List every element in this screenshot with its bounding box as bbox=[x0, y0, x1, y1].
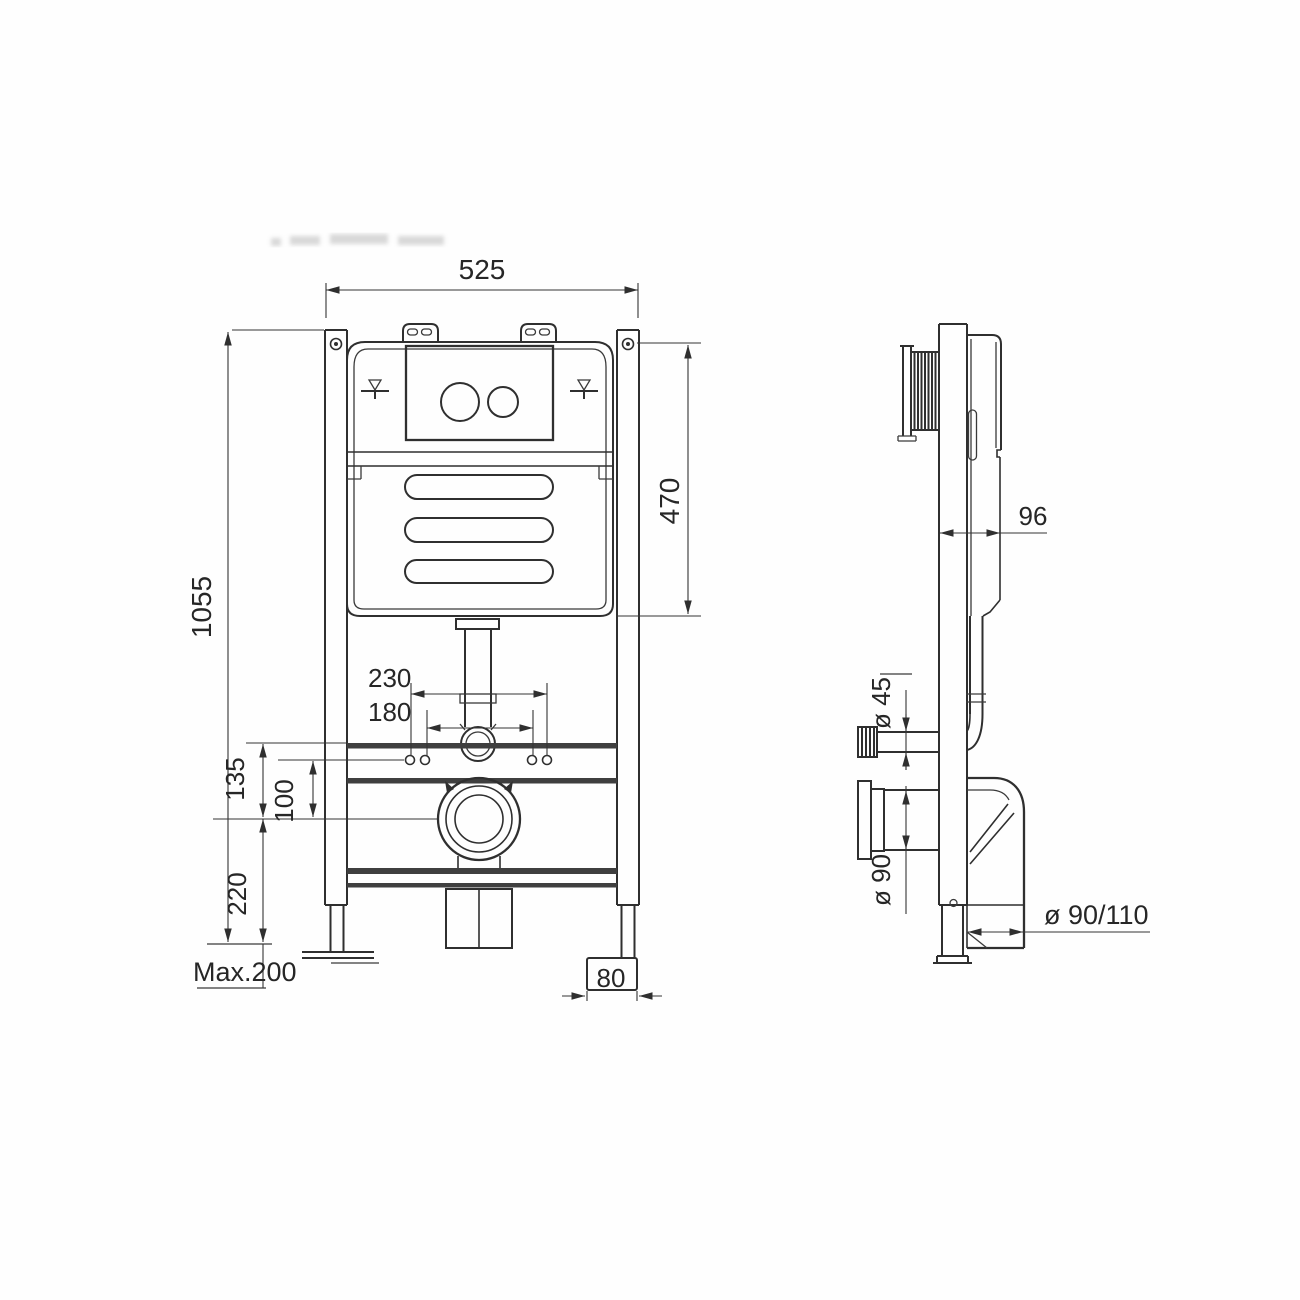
inlet-connector bbox=[911, 352, 939, 430]
dim-fixing-to-waste-label: 100 bbox=[269, 779, 299, 822]
dim-flush-pipe-dia: ø 45 bbox=[866, 674, 912, 770]
dim-cistern-bottom: 470 bbox=[616, 343, 701, 616]
drain-elbow bbox=[967, 778, 1024, 948]
watermark-smudge bbox=[271, 234, 444, 246]
fixing-holes bbox=[278, 756, 552, 765]
flush-stub bbox=[858, 727, 939, 757]
waste-outlet bbox=[213, 778, 520, 868]
front-view: 525 1055 470 230 180 135 bbox=[186, 254, 701, 1001]
dim-depth: 96 bbox=[940, 501, 1047, 533]
waste-stub bbox=[858, 781, 939, 859]
dim-overall-width: 525 bbox=[326, 254, 638, 318]
dim-overall-height-label: 1055 bbox=[186, 576, 217, 638]
reinforcement-slot bbox=[405, 518, 553, 542]
cross-rails bbox=[347, 743, 617, 888]
flush-plate bbox=[406, 346, 553, 440]
wc-frame-technical-drawing: 525 1055 470 230 180 135 bbox=[0, 0, 1300, 1300]
mounting-brackets bbox=[403, 324, 556, 342]
dim-depth-label: 96 bbox=[1019, 501, 1048, 531]
flush-bend bbox=[966, 616, 986, 750]
side-view: 96 ø 45 ø 90 ø 90/110 bbox=[858, 324, 1150, 963]
cistern-profile bbox=[967, 335, 1001, 616]
side-rail bbox=[939, 324, 967, 905]
dim-fixing-to-waste: 100 bbox=[269, 761, 313, 823]
reinforcement-slots bbox=[405, 475, 553, 583]
side-foot bbox=[933, 900, 972, 964]
dim-leg-extension: Max.200 bbox=[193, 957, 297, 987]
dim-overall-height: 1055 bbox=[186, 330, 324, 944]
dim-rail-to-waste-label: 135 bbox=[220, 757, 250, 800]
dim-fixing-inner-label: 180 bbox=[368, 697, 411, 727]
flush-button-small bbox=[488, 387, 518, 417]
flush-button-large bbox=[441, 383, 479, 421]
cistern bbox=[347, 342, 613, 616]
flush-pipe bbox=[436, 619, 499, 761]
water-level-icon bbox=[361, 380, 598, 399]
dim-foot-width-label: 80 bbox=[597, 963, 626, 993]
dim-leg-extension-label: Max.200 bbox=[193, 957, 297, 987]
dim-outlet-dia-label: ø 90/110 bbox=[1044, 900, 1149, 930]
dim-cistern-bottom-label: 470 bbox=[654, 478, 685, 525]
reinforcement-slot bbox=[405, 475, 553, 499]
dim-fixing-outer-label: 230 bbox=[368, 663, 411, 693]
dim-foot-width: 80 bbox=[562, 963, 662, 1001]
dim-flush-pipe-dia-label: ø 45 bbox=[866, 677, 896, 729]
wall-plate bbox=[898, 346, 916, 441]
pan-bracket bbox=[446, 889, 512, 948]
reinforcement-slot bbox=[405, 560, 553, 583]
dim-waste-pipe-dia-label: ø 90 bbox=[866, 854, 896, 906]
technical-drawing-page: 525 1055 470 230 180 135 bbox=[0, 0, 1300, 1300]
dim-waste-height-label: 220 bbox=[222, 872, 252, 915]
dim-overall-width-label: 525 bbox=[459, 254, 506, 285]
